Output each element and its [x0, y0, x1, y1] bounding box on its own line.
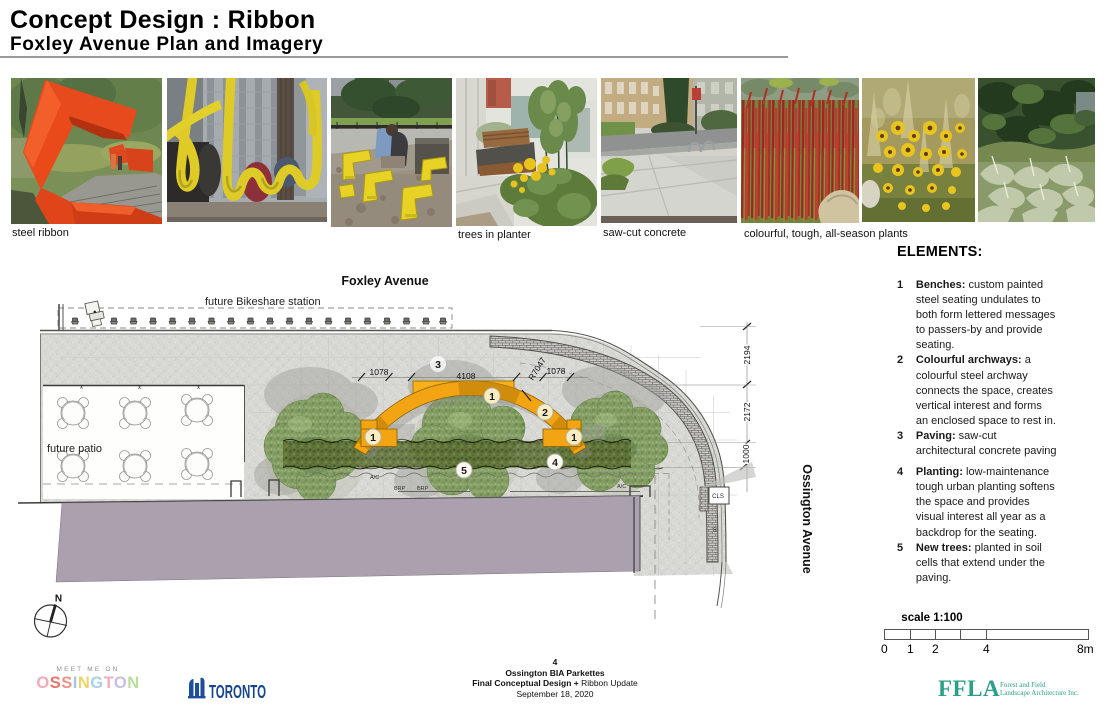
svg-text:x: x	[197, 385, 200, 391]
svg-text:B: B	[713, 528, 717, 534]
svg-text:TORONTO: TORONTO	[209, 681, 266, 702]
svg-text:8m: 8m	[1077, 642, 1094, 656]
svg-text:A/C: A/C	[617, 484, 626, 490]
svg-text:1: 1	[370, 432, 376, 444]
svg-text:4108: 4108	[457, 371, 476, 381]
svg-text:future Bikeshare station: future Bikeshare station	[205, 296, 321, 308]
svg-text:5: 5	[461, 465, 467, 477]
svg-text:2: 2	[932, 642, 939, 656]
svg-text:2: 2	[542, 407, 548, 419]
svg-text:1000: 1000	[741, 444, 751, 463]
svg-text:3: 3	[435, 359, 441, 371]
svg-text:2194: 2194	[742, 345, 752, 364]
svg-text:future patio: future patio	[47, 443, 102, 455]
svg-text:Foxley Avenue: Foxley Avenue	[341, 274, 428, 288]
svg-text:BRP: BRP	[417, 486, 429, 492]
svg-text:BRP: BRP	[394, 486, 406, 492]
svg-text:CLS: CLS	[712, 494, 724, 500]
svg-text:1: 1	[907, 642, 914, 656]
svg-text:4: 4	[552, 457, 558, 469]
svg-text:1: 1	[571, 432, 577, 444]
svg-text:2172: 2172	[742, 402, 752, 421]
svg-text:1078: 1078	[370, 367, 389, 377]
svg-text:N: N	[55, 594, 62, 605]
svg-text:x: x	[138, 385, 141, 391]
svg-text:0: 0	[881, 642, 888, 656]
svg-text:Ossington Avenue: Ossington Avenue	[800, 464, 814, 574]
svg-text:x: x	[80, 385, 83, 391]
svg-text:1078: 1078	[547, 366, 566, 376]
svg-text:4: 4	[983, 642, 990, 656]
svg-text:1: 1	[489, 391, 495, 403]
svg-text:A/C: A/C	[370, 475, 379, 481]
